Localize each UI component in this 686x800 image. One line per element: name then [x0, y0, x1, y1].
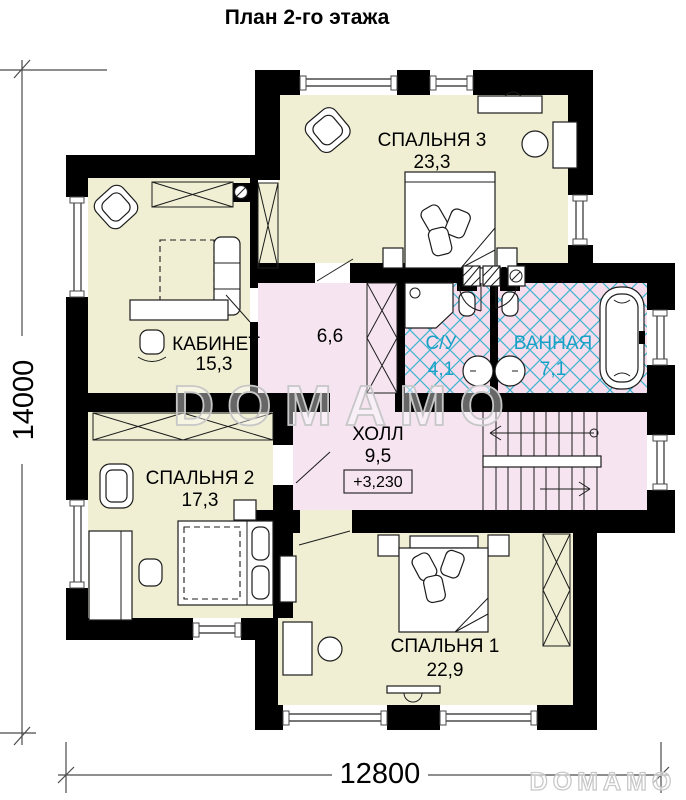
window-stairs-right — [647, 435, 675, 490]
office-chair-icon — [140, 330, 164, 354]
window-office-left — [66, 197, 88, 297]
door-opening-bedroom2 — [273, 445, 293, 485]
horizontal-dimension: 12800 — [340, 758, 421, 790]
stool-icon — [522, 131, 548, 157]
bedroom1-area: 22,9 — [427, 660, 464, 681]
corridor-area: 6,6 — [317, 326, 343, 347]
floor-plan-page: План 2-го этажа — [0, 0, 686, 800]
window-bedroom2-left — [66, 500, 88, 588]
table-icon — [283, 622, 312, 675]
elevation-mark: +3,230 — [344, 470, 412, 493]
nightstand-icon — [497, 248, 517, 268]
bath-tap — [639, 331, 645, 344]
wall-bedroom3-right — [568, 70, 593, 283]
wall-bedroom1-right — [573, 530, 597, 730]
bathroom-label: ВАННАЯ — [514, 333, 593, 354]
laundry-appliances — [463, 266, 525, 286]
wall-bedroom3-bottom-a — [258, 263, 315, 283]
window-bedroom3-right — [568, 195, 593, 245]
window-bedroom1-bottom-right — [440, 705, 537, 730]
bedroom1-label: СПАЛЬНЯ 1 — [391, 636, 500, 657]
watermark-center: DOMAMO — [173, 374, 517, 438]
window-bedroom3-top-small — [430, 70, 473, 95]
window-bathroom-right — [647, 310, 675, 365]
window-bedroom3-top-large — [300, 70, 397, 95]
door-opening-office — [250, 288, 258, 322]
office-label: КАБИНЕТ — [172, 334, 260, 355]
page-title: План 2-го этажа — [225, 6, 390, 29]
bedroom3-area: 23,3 — [414, 152, 451, 173]
svg-text:+3,230: +3,230 — [353, 474, 402, 491]
dresser-icon — [280, 556, 296, 602]
stair-handrail — [483, 456, 601, 467]
wall-lower-mid — [352, 510, 597, 533]
chair-icon — [139, 559, 162, 586]
bathroom-area: 7,1 — [540, 359, 566, 380]
wc-label: С/У — [425, 333, 457, 354]
vanity-table — [478, 96, 542, 113]
desk-icon — [130, 300, 228, 320]
stool-icon — [318, 637, 342, 661]
window-bedroom1-bottom-left — [283, 705, 387, 730]
door-opening-bedroom3 — [315, 263, 350, 283]
bedroom2-label: СПАЛЬНЯ 2 — [146, 468, 255, 489]
nightstand-icon — [378, 535, 399, 556]
tv-console-icon — [387, 686, 440, 693]
bedroom2-area: 17,3 — [182, 490, 219, 511]
hall-area: 9,5 — [365, 446, 391, 467]
headboard — [410, 536, 478, 548]
cabinet-icon — [553, 122, 577, 168]
nightstand-icon — [488, 535, 509, 556]
wall-leftwing-top — [66, 155, 257, 178]
nightstand-icon — [234, 500, 256, 520]
pillow-icon — [252, 527, 269, 560]
toilet-icon — [502, 292, 518, 316]
pillow-icon — [252, 566, 269, 599]
floor-plan-drawing: План 2-го этажа — [0, 0, 686, 800]
desk-icon — [89, 531, 132, 620]
nightstand-icon — [383, 248, 403, 268]
wall-landing-bottom — [597, 510, 675, 533]
watermark-logo: DOMAMO — [530, 768, 677, 796]
wall-bedroom2-bottom — [66, 618, 278, 640]
office-area: 15,3 — [196, 354, 233, 375]
vertical-dimension: 14000 — [8, 360, 40, 441]
window-bedroom2-bottom — [193, 618, 241, 640]
wall-office-right — [250, 178, 258, 395]
door-opening-hall-bedroom1 — [300, 510, 352, 533]
bedroom3-label: СПАЛЬНЯ 3 — [378, 130, 487, 151]
